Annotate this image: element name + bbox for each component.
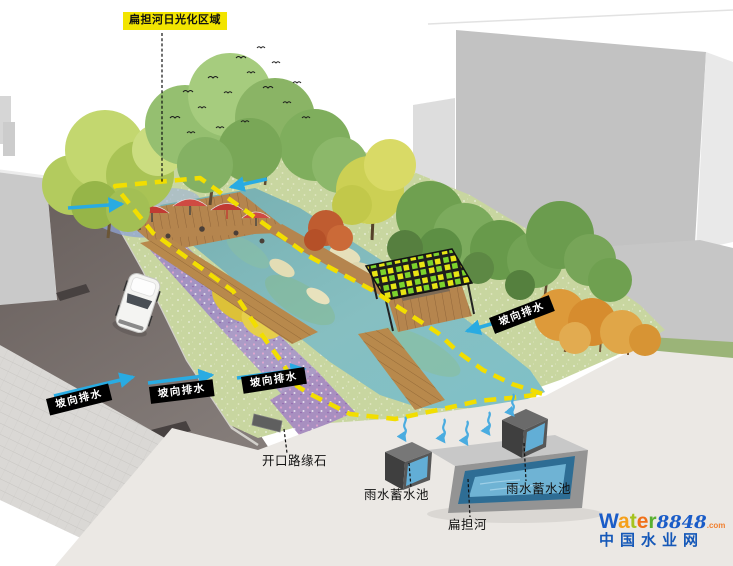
autumn-tree-canopy bbox=[559, 322, 591, 354]
tree-canopy bbox=[106, 188, 150, 232]
curb-annotation: 开口路缘石 bbox=[262, 455, 327, 469]
deck-furniture bbox=[260, 239, 265, 244]
logo-wordmark: Water8848.com bbox=[599, 511, 733, 532]
logo-subtitle: 中国水业网 bbox=[599, 533, 733, 548]
autumn-tree-canopy bbox=[629, 324, 661, 356]
deck-furniture bbox=[166, 234, 171, 239]
water8848-logo: Water8848.com 中国水业网 bbox=[599, 511, 733, 549]
tank-left-annotation: 雨水蓄水池 bbox=[364, 489, 429, 503]
daylighting-zone-label: 扁担河日光化区域 bbox=[123, 12, 227, 30]
tree-canopy bbox=[588, 258, 632, 302]
rooftop-edge-line bbox=[428, 10, 733, 24]
tree-canopy bbox=[177, 137, 233, 193]
deck-furniture bbox=[234, 231, 239, 236]
red-shrub bbox=[327, 225, 353, 251]
diagram-canvas: 扁担河日光化区域 坡向排水 坡向排水 坡向排水 坡向排水 开口路缘石 雨水蓄水池… bbox=[0, 0, 733, 566]
illustration-canvas bbox=[0, 0, 733, 566]
building-small-left-b bbox=[3, 122, 15, 156]
logo-letter: t bbox=[630, 510, 637, 533]
logo-letter: a bbox=[618, 510, 630, 533]
logo-number: 8848 bbox=[657, 512, 707, 533]
logo-tld: .com bbox=[707, 521, 726, 530]
logo-letter: r bbox=[648, 510, 656, 533]
river-annotation: 扁担河 bbox=[448, 519, 487, 533]
tank-right-annotation: 雨水蓄水池 bbox=[506, 483, 571, 497]
logo-letter: e bbox=[637, 510, 649, 533]
yellow-tree-canopy bbox=[364, 139, 416, 191]
tree-canopy bbox=[505, 270, 535, 300]
logo-letter: W bbox=[599, 510, 618, 533]
red-shrub bbox=[304, 229, 326, 251]
deck-furniture bbox=[199, 226, 205, 232]
